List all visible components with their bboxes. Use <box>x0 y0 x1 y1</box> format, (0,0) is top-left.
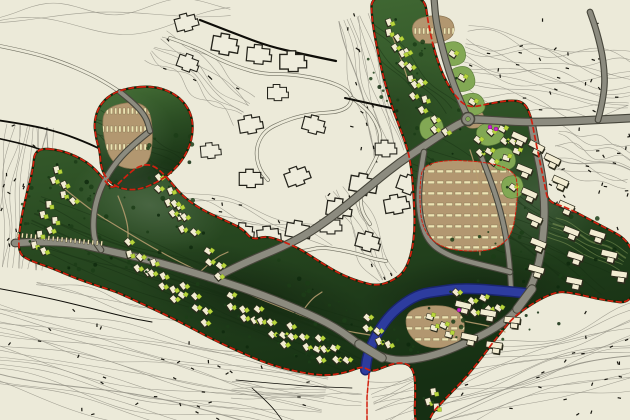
tree <box>157 214 160 217</box>
tree <box>87 252 90 255</box>
tree <box>131 206 135 210</box>
tree <box>487 231 489 233</box>
tree <box>305 281 310 286</box>
tree <box>342 318 347 323</box>
spot-elevation-tick <box>567 52 568 55</box>
tree <box>459 325 464 330</box>
tree <box>520 230 524 234</box>
tree <box>326 338 329 341</box>
tree <box>416 72 418 74</box>
tree <box>148 176 151 179</box>
tree <box>277 258 281 262</box>
tree <box>525 268 528 271</box>
tree <box>350 323 352 325</box>
spot-elevation-tick <box>542 18 543 21</box>
tree <box>537 311 539 313</box>
tree <box>557 285 560 288</box>
tree <box>612 247 617 252</box>
tree <box>222 330 225 333</box>
existing-building <box>280 51 307 72</box>
tree <box>424 48 426 50</box>
tree <box>345 309 347 311</box>
parking-stall <box>48 236 50 241</box>
parking-stall <box>21 233 23 238</box>
tree <box>379 95 383 99</box>
tree <box>501 338 504 341</box>
tree <box>226 325 229 328</box>
tree <box>367 58 370 61</box>
tree <box>465 323 467 325</box>
tree <box>518 235 522 239</box>
existing-building <box>268 85 289 101</box>
tree <box>79 187 83 191</box>
tree <box>377 85 381 89</box>
tree <box>307 289 312 294</box>
tree <box>566 262 570 266</box>
spot-elevation-tick <box>347 27 348 30</box>
tree <box>110 257 113 260</box>
tree <box>494 242 496 244</box>
parking-stall <box>96 240 98 245</box>
spot-elevation-tick <box>617 153 620 154</box>
existing-building <box>239 169 263 187</box>
parking-stall <box>83 239 85 244</box>
tree <box>455 336 457 338</box>
tree <box>580 276 583 279</box>
tree <box>89 195 91 197</box>
spot-elevation-tick <box>154 396 157 397</box>
tree <box>373 72 375 74</box>
tree <box>594 258 598 262</box>
parking-stall <box>87 240 89 245</box>
tree <box>246 345 249 348</box>
tree <box>396 338 399 341</box>
spot-elevation-tick <box>6 173 7 176</box>
parking-stall <box>65 237 67 242</box>
tree <box>68 267 71 270</box>
site-plan-canvas <box>0 0 630 420</box>
tree <box>56 163 59 166</box>
tree <box>393 328 396 331</box>
tree <box>558 275 561 278</box>
tree <box>189 246 193 250</box>
tree <box>524 207 526 209</box>
parking-stall <box>56 236 58 241</box>
parking-stall <box>52 236 54 241</box>
tree <box>124 197 126 199</box>
tree <box>104 214 108 218</box>
tree <box>583 251 586 254</box>
spot-elevation-tick <box>539 109 542 110</box>
tree <box>127 261 130 264</box>
tree <box>87 197 92 202</box>
tree <box>413 133 416 136</box>
utility-marker <box>494 127 498 131</box>
tree <box>308 360 311 363</box>
tree <box>69 224 73 228</box>
tree <box>458 252 460 254</box>
tree <box>24 222 27 225</box>
tree <box>396 98 399 101</box>
tree <box>328 303 331 306</box>
spot-elevation-tick <box>625 190 628 191</box>
tree <box>202 231 205 234</box>
parking-stall <box>30 234 32 239</box>
tree <box>266 317 268 319</box>
parking-stall <box>92 240 94 245</box>
tree <box>209 332 213 336</box>
spot-elevation-tick <box>81 408 82 411</box>
master-plan-image <box>0 0 630 420</box>
tree <box>595 216 600 221</box>
tree <box>114 180 118 184</box>
spot-elevation-tick <box>202 391 205 392</box>
tree <box>190 316 193 319</box>
tree <box>30 186 34 190</box>
roundabout-island <box>466 117 471 122</box>
tree <box>409 348 413 352</box>
tree <box>421 50 423 52</box>
spot-elevation-tick <box>615 97 618 98</box>
tree <box>478 235 481 238</box>
utility-marker <box>457 308 461 312</box>
tree <box>93 193 95 195</box>
tree <box>77 267 81 271</box>
tree <box>419 52 424 57</box>
parking-stall <box>26 233 28 238</box>
tree <box>84 180 89 185</box>
tree <box>188 160 192 164</box>
tree <box>21 203 24 206</box>
tree <box>461 318 466 323</box>
tree <box>154 137 157 140</box>
tree <box>215 329 219 333</box>
tree <box>452 153 454 155</box>
tree <box>415 126 419 130</box>
tree <box>83 217 85 219</box>
tree <box>417 351 419 353</box>
tree <box>27 222 30 225</box>
tree <box>413 42 417 46</box>
parking-stall <box>100 241 102 246</box>
tree <box>420 39 425 44</box>
utility-marker <box>488 125 492 129</box>
tree <box>125 266 128 269</box>
tree <box>431 158 434 161</box>
parking-stall <box>78 239 80 244</box>
tree <box>295 355 298 358</box>
tree <box>394 18 397 21</box>
tree <box>248 335 251 338</box>
spot-elevation-tick <box>523 97 526 98</box>
tree <box>185 316 188 319</box>
tree <box>520 251 522 253</box>
tree <box>477 279 480 282</box>
tree <box>74 263 78 267</box>
tree <box>450 238 454 242</box>
tree <box>109 187 111 189</box>
spot-elevation-tick <box>188 341 189 344</box>
parking-stall <box>61 237 63 242</box>
tree <box>428 307 431 310</box>
tree <box>196 282 200 286</box>
tree <box>305 354 307 356</box>
spot-elevation-tick <box>96 324 97 327</box>
tree <box>564 271 567 274</box>
tree <box>528 329 530 331</box>
tree <box>214 327 217 330</box>
tree <box>146 146 150 150</box>
tree <box>522 280 525 283</box>
tree <box>386 100 388 102</box>
tree <box>146 231 149 234</box>
tree <box>491 254 496 259</box>
tree <box>223 337 225 339</box>
tree <box>369 77 372 80</box>
tree <box>382 89 385 92</box>
parking-stall <box>70 238 72 243</box>
tree <box>93 263 97 267</box>
tree <box>312 289 314 291</box>
tree <box>451 320 455 324</box>
tree <box>305 291 307 293</box>
parking-stall <box>74 238 76 243</box>
tree <box>91 268 95 272</box>
tree <box>301 293 306 298</box>
existing-building <box>375 140 397 157</box>
spot-elevation-tick <box>619 361 620 364</box>
spot-elevation-tick <box>208 360 209 363</box>
tree <box>557 322 560 325</box>
tree <box>297 276 302 281</box>
tree <box>412 345 415 348</box>
tree <box>74 160 78 164</box>
tree <box>174 133 179 138</box>
tree <box>525 314 528 317</box>
tree <box>287 284 291 288</box>
tree <box>89 184 94 189</box>
tree <box>338 301 340 303</box>
tree <box>395 109 398 112</box>
tree <box>158 250 162 254</box>
tree <box>49 187 52 190</box>
tree <box>28 195 31 198</box>
tree <box>406 343 410 347</box>
